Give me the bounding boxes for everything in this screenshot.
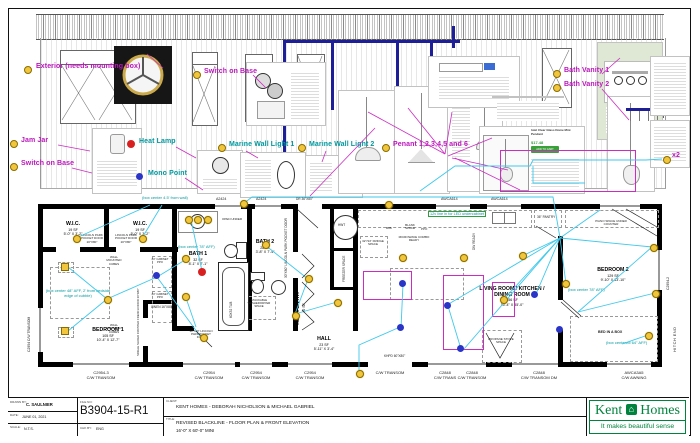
mono-point-icon xyxy=(136,173,143,180)
callout-x2: x2 xyxy=(672,152,680,159)
window-label: C2954 C/W TRANSOM xyxy=(27,317,31,352)
annotation-box-78-bed2: (box center 78" AFF) xyxy=(568,288,605,293)
light-icon xyxy=(10,140,18,148)
drawn-by-label: DRAWN BY: xyxy=(10,400,27,404)
window-label: AWCA3A5C/W AWNING xyxy=(611,371,657,380)
note-french-door: SINGLE SLIDER FROSTED FRENCH DOOR 30"X80… xyxy=(136,288,140,356)
window-label: C2954C/W TRANSOM xyxy=(187,371,231,380)
ceiling-light-icon xyxy=(334,299,342,307)
file-no-value: B3904-15-R1 xyxy=(80,405,148,417)
note-wall-cubes: WALL MOUNTED CUBES xyxy=(103,256,125,266)
ceiling-light-icon xyxy=(262,241,270,249)
date-label: DATE: xyxy=(10,413,19,417)
note-piano-space: PIANO SPACE UNDER COUNTER xyxy=(592,220,630,227)
exterior-light-icon xyxy=(385,201,393,209)
exterior-light-icon xyxy=(356,370,364,378)
window-gap xyxy=(607,362,651,367)
vanity-light-icon xyxy=(204,216,212,224)
annotation-box-64: (box centered 64" AFF) xyxy=(606,341,647,346)
navy-highlight-line xyxy=(331,40,334,110)
heat-lamp-icon xyxy=(127,140,135,148)
note-dw-ready: DW READY xyxy=(472,233,476,250)
ceiling-light-photo xyxy=(114,46,172,104)
ceiling-light-icon xyxy=(139,235,147,243)
ceiling-light-icon xyxy=(500,296,508,304)
toilet-bowl xyxy=(251,279,264,294)
wall-cube-light-icon xyxy=(61,327,69,335)
light-icon xyxy=(298,144,306,152)
titleblock-col-client: CLIENT: KENT HOMES - DEBORAH NICHOLSON &… xyxy=(164,398,587,436)
bed-in-box-outline xyxy=(570,316,658,362)
hot-water-tank xyxy=(333,215,358,240)
pendant-icon xyxy=(457,345,464,352)
callout-pendants: Penant 1,2,3,4,5 and 6 xyxy=(393,141,468,148)
wall-segment xyxy=(330,287,353,290)
toilet-bowl xyxy=(224,244,238,258)
highlight-box xyxy=(443,275,484,350)
product-card-specs xyxy=(492,96,564,98)
elevation-window xyxy=(542,48,572,108)
ceiling-light-icon xyxy=(519,252,527,260)
window-label: AWCA614 xyxy=(441,197,458,201)
elevation-roof-band xyxy=(36,14,664,40)
window-gap xyxy=(255,204,281,209)
window-label: C2954-2 xyxy=(666,277,670,290)
note-bed-in-box: BED IN A BOX xyxy=(598,330,622,334)
note-pocket-door: LINCOLN PARK POCKET DOOR 20"X80" xyxy=(114,234,138,244)
highlight-box xyxy=(500,150,636,192)
callout-switch-on-base-left: Switch on Base xyxy=(21,160,74,167)
chk-by-value: ENG xyxy=(96,427,104,431)
note-microwave: MICROWAVE COMBO READY xyxy=(398,236,430,243)
note-cabinet: 24" CABINET PPO xyxy=(150,258,170,264)
title-label: TITLE: xyxy=(166,417,175,421)
note-pantry: 36" PANTRY xyxy=(537,216,555,220)
ceiling-light-icon xyxy=(292,312,300,320)
annotation-box-78-bath: (box center 78" AFF) xyxy=(178,245,215,250)
light-icon xyxy=(663,156,671,164)
callout-marine-wall-light-1: Marine Wall Light 1 xyxy=(229,141,294,148)
note-washer: STACKABLE WASHER/DRYER SPACE xyxy=(244,299,274,309)
note-rear-door: DR 36"X80" xyxy=(296,198,313,202)
house-icon: ⌂ xyxy=(626,404,637,415)
note-fridge: 32"/34" FRIDGE SPACE xyxy=(360,240,386,247)
wall-light-icon xyxy=(650,244,658,252)
hwt-label: HWT xyxy=(338,224,345,228)
callout-jam-jar: Jam Jar xyxy=(21,137,48,144)
client-value: KENT HOMES - DEBORAH NICHOLSON & MICHAEL… xyxy=(176,405,315,410)
title-block: DRAWN BY: C. SAULNIER DATE: JUNE 01, 202… xyxy=(8,397,689,436)
room-label-hall: HALL 23 SF 5'-11" X 3'-4" xyxy=(306,337,342,351)
window-gap xyxy=(240,362,272,367)
callout-mono-point: Mono Point xyxy=(148,170,187,177)
product-card-sconce xyxy=(197,150,243,194)
bathtub xyxy=(218,262,249,331)
note-ppo: PPO xyxy=(421,228,427,231)
sink xyxy=(271,280,286,295)
window-gap xyxy=(428,362,486,367)
propane-stove-outline xyxy=(482,330,522,363)
wall-light-icon xyxy=(104,296,112,304)
vanity-light-icon xyxy=(185,216,193,224)
wall-segment xyxy=(38,204,662,209)
window-label: A2424 xyxy=(216,197,226,201)
logo-wordmark: Kent ⌂ Homes xyxy=(590,401,685,421)
window-label: C2954-3C/W TRANSOM xyxy=(79,371,123,380)
pendant-icon xyxy=(399,280,406,287)
wall-light-icon xyxy=(645,332,653,340)
note-pocket-door: LINCOLN PARK POCKET DOOR 20"X80" xyxy=(80,234,104,244)
window-gap xyxy=(215,204,241,209)
note-hitch-end: HITCH END xyxy=(672,327,677,352)
ceiling-light-icon xyxy=(200,334,208,342)
product-card-jam-jar xyxy=(92,128,142,194)
navy-highlight-line xyxy=(283,40,460,43)
pocket-door-gap xyxy=(116,247,140,252)
ceiling-light-icon xyxy=(73,235,81,243)
note-cabinet: 24" CABINET PPO xyxy=(150,293,170,299)
window-label: AWCA614 xyxy=(491,197,508,201)
light-icon xyxy=(24,66,32,74)
window-gap xyxy=(73,362,129,367)
window-gap xyxy=(183,362,235,367)
scale-value: N.T.S. xyxy=(24,427,34,431)
door-gap xyxy=(143,318,148,346)
mono-point-icon xyxy=(153,272,160,279)
vanity-light-icon xyxy=(194,216,202,224)
wall-light-icon xyxy=(562,280,570,288)
window-gap xyxy=(657,250,662,290)
pocket-door-gap xyxy=(293,252,298,278)
ceiling-light-icon xyxy=(399,254,407,262)
pendant-icon xyxy=(531,291,538,298)
callout-bath-vanity-1: Bath Vanity 1 xyxy=(564,67,609,74)
tub-label: 60X32 TUB xyxy=(229,302,233,318)
pendant-icon xyxy=(397,324,404,331)
drawn-by-value: C. SAULNIER xyxy=(26,402,53,407)
note-bib: BI/B xyxy=(386,227,392,230)
window-gap xyxy=(600,204,640,209)
ceiling-light-icon xyxy=(182,293,190,301)
note-pocket-door-30: 30"X80" LINCOLN PARK POCKET DOOR xyxy=(284,218,288,278)
window-label: C2954C/W TRANSOM xyxy=(234,371,278,380)
pendant-icon xyxy=(382,144,390,152)
heat-lamp-icon xyxy=(198,268,206,276)
annotation-box-wall: (box center 4.5' from wall) xyxy=(142,196,188,201)
note-propane: PROPANE STOVE SPACE xyxy=(486,338,516,345)
wall-segment xyxy=(38,362,662,367)
annotation-led-undercabinet: 12v line in for LED undercabinet xyxy=(428,211,486,217)
window-gap xyxy=(436,204,470,209)
light-icon xyxy=(218,144,226,152)
exterior-light-icon xyxy=(240,200,248,208)
scale-label: SCALE: xyxy=(10,425,21,429)
light-icon xyxy=(193,71,201,79)
drawing-sheet: Iolet Clear Glass Dome Mini Pendant $17.… xyxy=(0,0,700,443)
chk-by-label: CHK BY: xyxy=(80,426,92,430)
callout-marine-wall-light-2: Marine Wall Light 2 xyxy=(309,141,374,148)
callout-heat-lamp: Heat Lamp xyxy=(139,138,176,145)
note-linen: LINEN 16"X80" xyxy=(150,306,174,310)
pendant-icon xyxy=(444,302,451,309)
ceiling-light-icon xyxy=(305,275,313,283)
kent-homes-logo: Kent ⌂ Homes It makes beautiful sense xyxy=(586,398,689,436)
logo-tagline: It makes beautiful sense xyxy=(590,421,685,432)
ceiling-light-icon xyxy=(460,254,468,262)
note-open-under: OPEN UNDER xyxy=(222,218,242,221)
light-icon xyxy=(10,163,18,171)
file-no-label: FILE NO: xyxy=(80,400,93,404)
date-value: JUNE 01, 2021 xyxy=(22,415,46,419)
wall-light-icon xyxy=(652,290,660,298)
navy-highlight-line xyxy=(452,26,455,48)
product-title: Iolet Clear Glass Dome Mini Pendant xyxy=(531,129,582,136)
note-khpd: KHPD 60"X80" xyxy=(384,355,405,359)
room-label-bedroom-2: BEDROOM 2 129 SF 9'-10" X 13'-10" xyxy=(585,268,641,282)
product-price: $17.48 xyxy=(531,140,543,145)
callout-exterior: Exterior (needs mounting box) xyxy=(36,63,140,70)
product-card-spotlight xyxy=(246,62,326,126)
window-gap xyxy=(38,308,43,352)
title-value-1: REVISED BLACKLINE - FLOOR PLAN & FRONT E… xyxy=(176,421,309,426)
titleblock-col-meta: DRAWN BY: C. SAULNIER DATE: JUNE 01, 202… xyxy=(8,398,78,436)
title-value-2: 16'-0" X 60'-0" MINI xyxy=(176,428,214,433)
kitchen-sink xyxy=(504,212,516,224)
light-icon xyxy=(553,70,561,78)
window-label: C2954C/W TRANSOM xyxy=(288,371,332,380)
note-wall-cubes: WALL MOUNTED CUBES xyxy=(103,324,125,334)
window-gap xyxy=(487,204,521,209)
wall-segment xyxy=(330,248,353,251)
product-card-right-1 xyxy=(650,56,690,116)
product-card-marine-light-oval xyxy=(240,152,306,198)
room-label-rear-entry: REAR ENTRY 40 SF xyxy=(296,286,306,330)
light-icon xyxy=(553,84,561,92)
note-freezer: FREEZER SPACE xyxy=(342,256,346,282)
door-gap xyxy=(294,204,322,209)
wall-cube-light-icon xyxy=(61,263,69,271)
window-label: C2848C/W TRANSOM DM xyxy=(516,371,562,380)
wall-segment xyxy=(104,204,109,252)
window-label: C2848C/W TRANSOM xyxy=(450,371,494,380)
callout-bath-vanity-2: Bath Vanity 2 xyxy=(564,81,609,88)
annotation-box-48: (box center 48" AFF, 2' from bedside edg… xyxy=(42,289,114,298)
window-gap xyxy=(288,362,332,367)
wall-segment xyxy=(172,204,177,331)
ceiling-light-icon xyxy=(182,255,190,263)
titleblock-col-file: FILE NO: B3904-15-R1 CHK BY: ENG xyxy=(78,398,164,436)
pendant-icon xyxy=(556,326,563,333)
door-gap xyxy=(368,362,412,367)
callout-switch-on-base-mid: Switch on Base xyxy=(204,68,257,75)
pocket-door-gap xyxy=(56,247,80,252)
client-label: CLIENT: xyxy=(166,399,177,403)
window-label: C/W TRANSOM xyxy=(368,371,412,376)
note-blank-space: BLANK SPACE xyxy=(402,224,418,231)
window-label: A2424 xyxy=(256,197,266,201)
